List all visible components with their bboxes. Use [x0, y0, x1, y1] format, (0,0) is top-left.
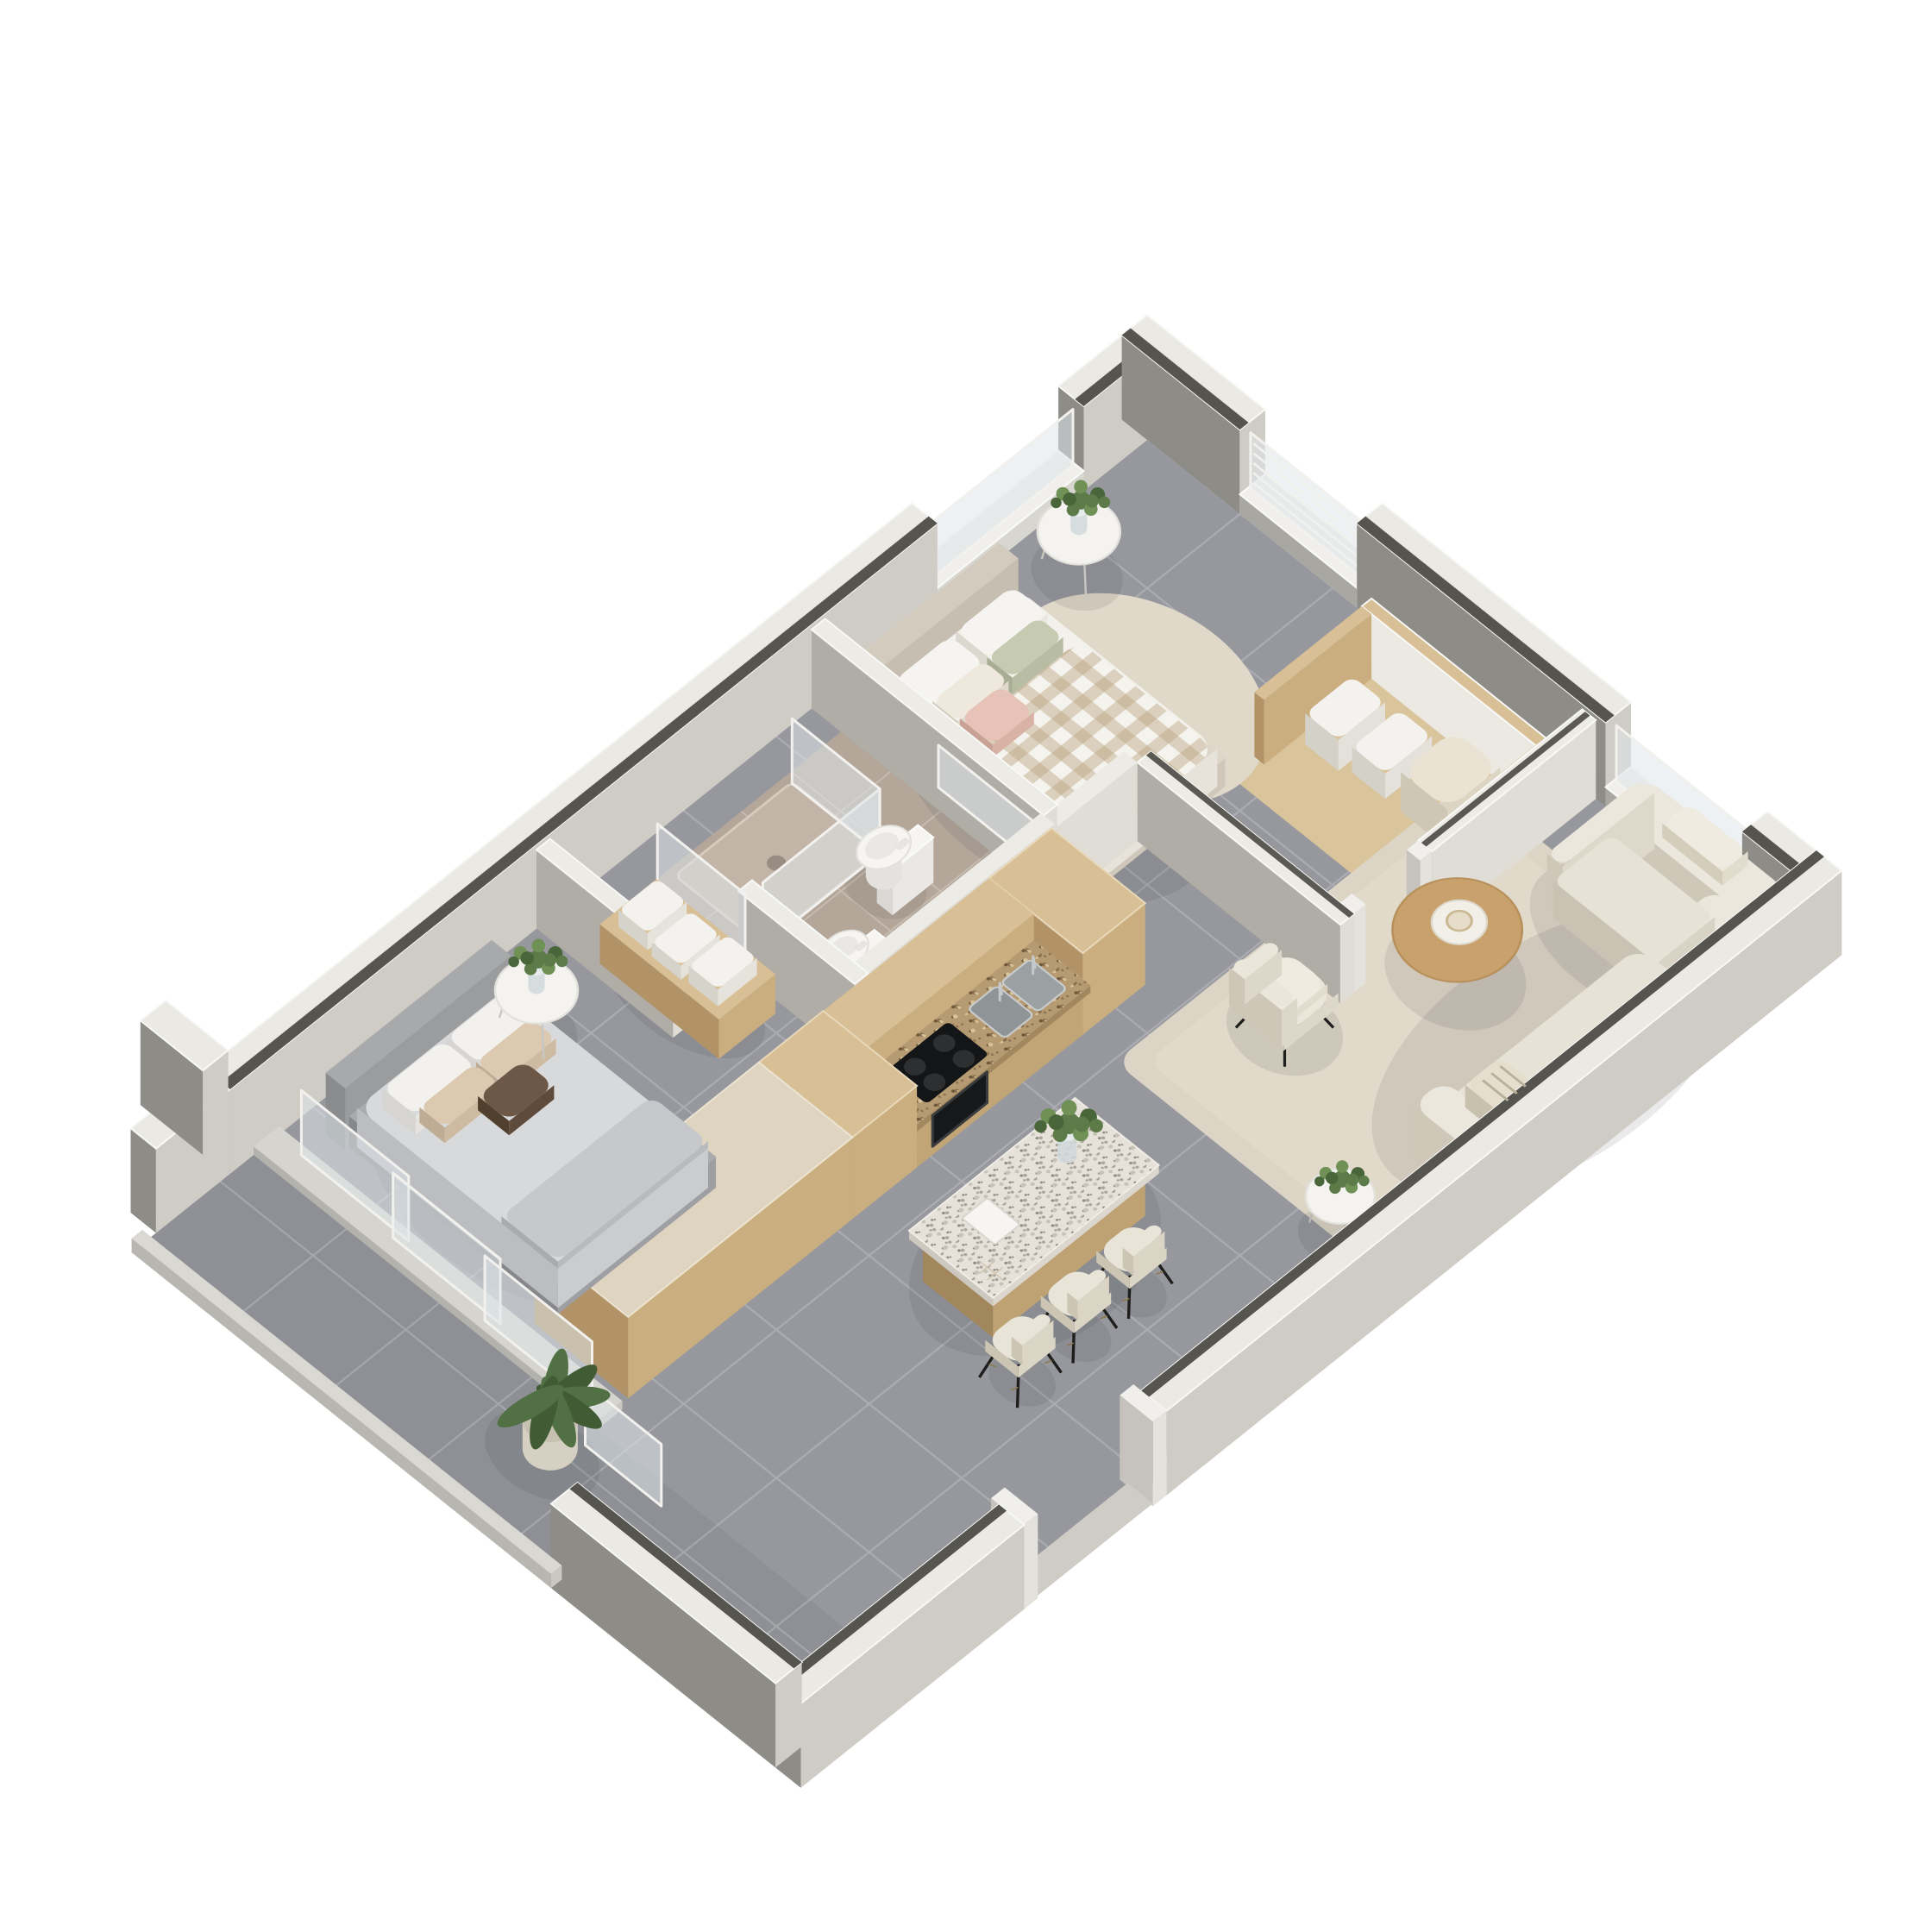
isometric-floor-plan — [0, 0, 1932, 1932]
floor-plan-stage — [0, 0, 1932, 1932]
